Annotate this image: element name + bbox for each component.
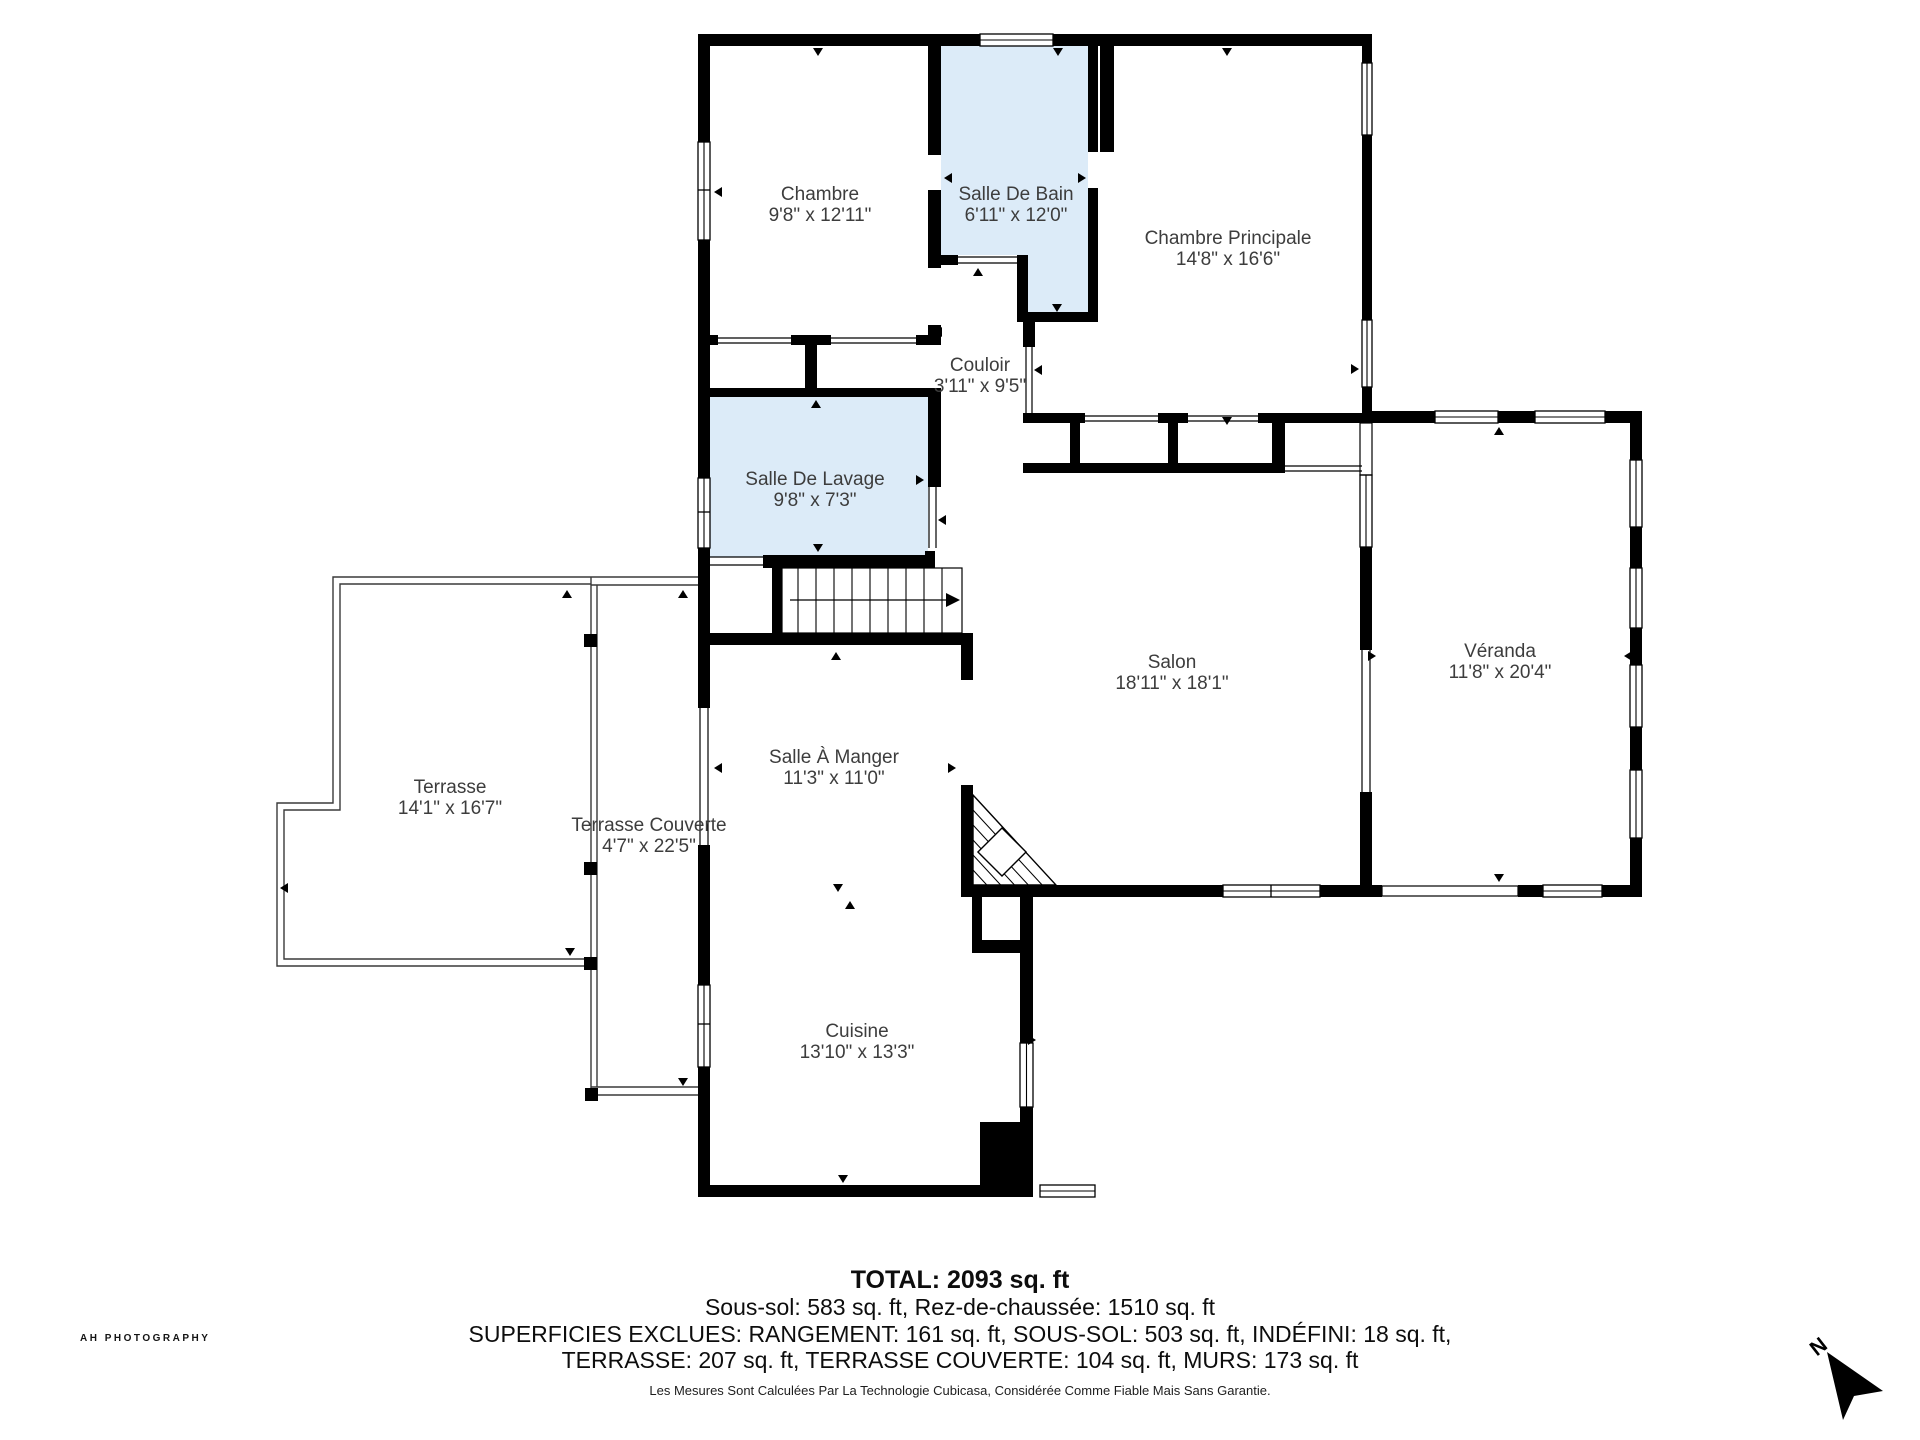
staircase [782, 568, 962, 633]
floorplan-drawing: N [0, 0, 1920, 1440]
floorplan-page: N Chambre 9'8" x 12'11" Salle De Bain 6'… [0, 0, 1920, 1440]
excluded-areas-text-1: SUPERFICIES EXCLUES: RANGEMENT: 161 sq. … [0, 1321, 1920, 1348]
fireplace [973, 795, 1056, 885]
total-area-text: TOTAL: 2093 sq. ft [0, 1266, 1920, 1294]
wet-room-fills [710, 46, 1088, 557]
area-summary: TOTAL: 2093 sq. ft Sous-sol: 583 sq. ft,… [0, 1266, 1920, 1398]
excluded-areas-text-2: TERRASSE: 207 sq. ft, TERRASSE COUVERTE:… [0, 1347, 1920, 1374]
floor-areas-text: Sous-sol: 583 sq. ft, Rez-de-chaussée: 1… [0, 1294, 1920, 1321]
photographer-watermark: AH PHOTOGRAPHY [80, 1333, 210, 1344]
disclaimer-text: Les Mesures Sont Calculées Par La Techno… [0, 1383, 1920, 1398]
terrace-outline [277, 577, 698, 1101]
